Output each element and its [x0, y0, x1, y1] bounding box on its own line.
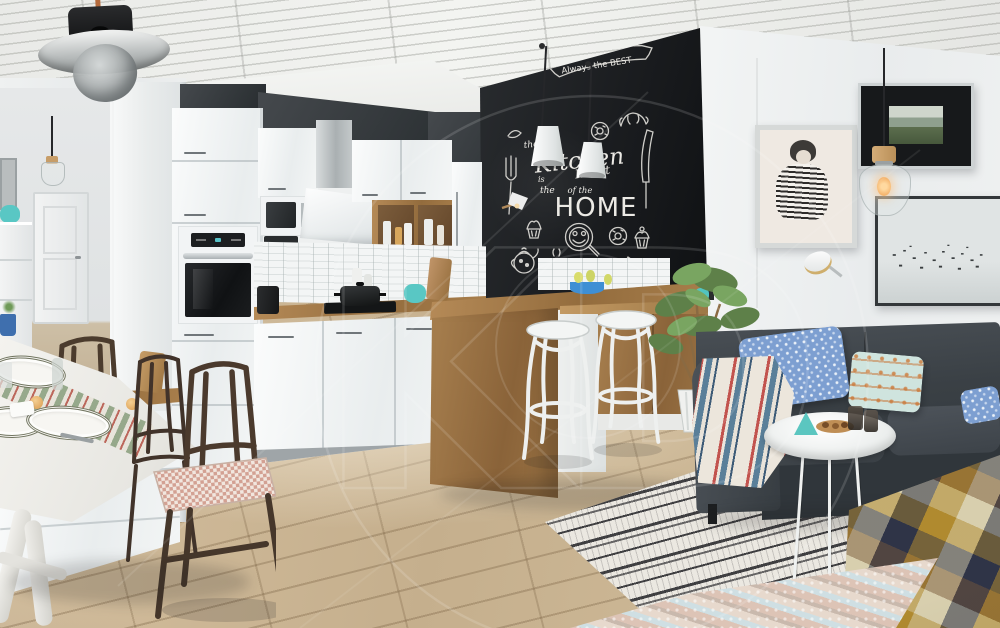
- door-panel: [43, 206, 77, 254]
- jar: [395, 227, 402, 245]
- cone-shade-opening: [533, 160, 563, 169]
- blue-flower-pot: [0, 314, 16, 336]
- coffee-maker: [257, 286, 279, 314]
- snack: [841, 422, 848, 428]
- glass-reflection: [193, 269, 213, 309]
- sketch-face: [796, 150, 811, 164]
- oven-display: [191, 233, 245, 247]
- donut-icon: [610, 228, 627, 245]
- cabinet-handle: [184, 152, 206, 154]
- word-the2: the: [540, 186, 555, 196]
- shelf-cubby: [378, 205, 414, 247]
- plant-sprig: [2, 300, 16, 314]
- upper-cabinet: [258, 128, 318, 198]
- stool: [524, 334, 592, 458]
- drinking-glass: [0, 362, 12, 388]
- oven-display-readout: [215, 238, 221, 242]
- snack: [832, 423, 839, 429]
- cutting-board: [426, 257, 452, 301]
- interior-door: [33, 192, 89, 324]
- cone-shade-opening: [579, 172, 605, 180]
- hood-chimney: [316, 120, 352, 188]
- upper-cabinet: [352, 140, 452, 202]
- teal-kettle: [404, 284, 426, 303]
- bulb-icon: [877, 177, 891, 196]
- drawer-handle: [268, 336, 294, 338]
- pear: [586, 270, 595, 282]
- mirror-frame: [0, 158, 17, 210]
- dining-shadow: [10, 560, 250, 604]
- glass-cup: [864, 410, 878, 432]
- word-is: is: [538, 175, 545, 184]
- oven-display-icons: [231, 239, 241, 241]
- jar: [404, 223, 412, 245]
- oven-display-icons: [196, 239, 206, 241]
- pot-handle: [379, 293, 386, 296]
- cabinet-seam: [172, 222, 260, 224]
- small-pendant-cord: [51, 116, 53, 158]
- pear: [574, 272, 583, 283]
- cabinet-seam: [394, 316, 396, 448]
- cabinet-handle: [456, 192, 458, 252]
- microwave-window: [266, 202, 296, 228]
- oven-handle-bar: [183, 253, 253, 259]
- croissant-icon: [508, 131, 521, 138]
- teal-teapot: [0, 205, 20, 223]
- pot-lid-knob: [356, 282, 364, 286]
- black-pot: [340, 286, 380, 306]
- cabinet-handle: [184, 214, 206, 216]
- snack: [822, 422, 829, 428]
- jar: [437, 225, 444, 245]
- shelf-cubby: [418, 205, 452, 247]
- teapot-icon: [512, 248, 539, 273]
- cabinet-seam: [400, 140, 402, 202]
- oven-glass-door: [185, 263, 251, 317]
- donut-icon: [592, 123, 609, 140]
- cabinet-seam: [172, 160, 260, 162]
- bottle: [52, 358, 63, 390]
- jar: [383, 221, 391, 245]
- pear: [604, 274, 612, 285]
- pendant-cord: [883, 48, 885, 150]
- blue-pillow: [959, 385, 1000, 425]
- door-handle: [75, 256, 81, 259]
- cabinet-handle: [268, 188, 286, 190]
- fruit-bowl: [570, 282, 604, 294]
- cupcake-icon: [527, 221, 541, 238]
- glass-cup: [848, 406, 863, 430]
- sketch-art-frame: [755, 125, 857, 248]
- landscape-photo: [889, 106, 943, 144]
- cabinet-handle: [410, 192, 426, 194]
- cabinet-handle: [362, 194, 378, 196]
- door-panel: [43, 258, 77, 310]
- word-home: HOME: [555, 193, 638, 223]
- industrial-pendant-lamp: [27, 0, 183, 112]
- birds-photo: [878, 199, 1000, 303]
- smiley-pan-icon: [566, 224, 600, 257]
- drawer-handle: [406, 328, 432, 330]
- shelf-line: [0, 259, 32, 261]
- built-in-oven: [178, 226, 258, 324]
- jar: [424, 219, 433, 245]
- croissant-icon: [620, 113, 648, 126]
- small-pendant-shade: [41, 162, 65, 186]
- chalkboard-sconce: [502, 192, 528, 210]
- animal-print-pillow: [848, 351, 925, 413]
- stool-seat: [527, 321, 589, 339]
- cabinet-seam: [172, 340, 260, 342]
- sketch-striped-top: [776, 164, 828, 220]
- cabinet-seam: [322, 318, 324, 458]
- chair-cushion: [154, 458, 276, 512]
- knife-icon: [642, 130, 653, 208]
- pot-handle: [334, 293, 341, 296]
- cabinet-handle: [184, 334, 214, 336]
- interior-scene: Always the BEST the Kitchen is the Heart…: [0, 0, 1000, 628]
- drawer-handle: [336, 332, 362, 334]
